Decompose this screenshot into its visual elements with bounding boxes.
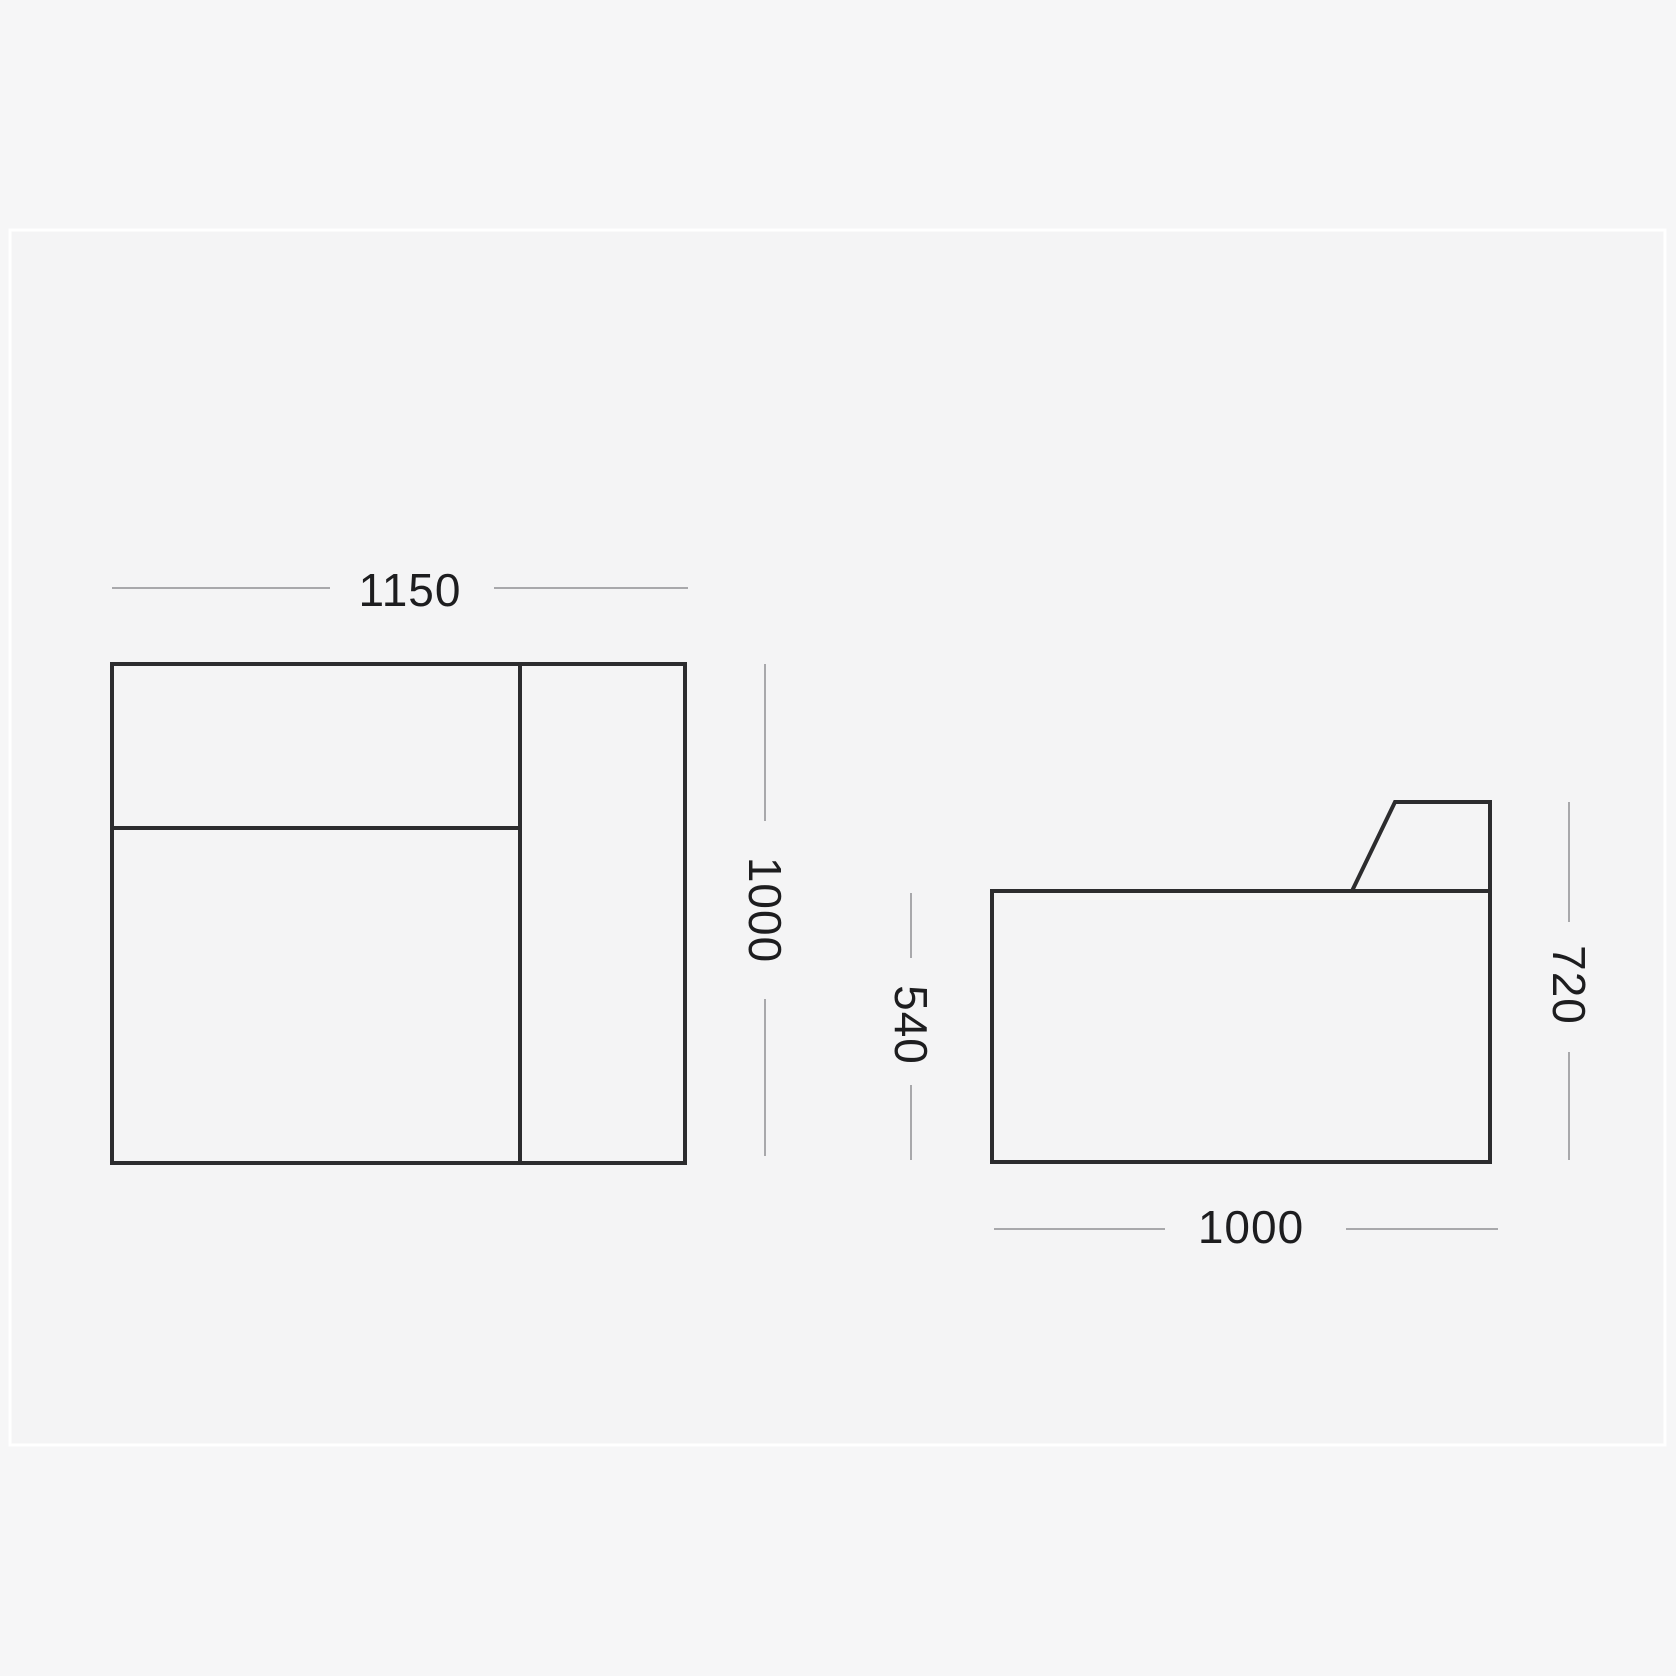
side-view-overall-height-dim-label: 720 bbox=[1543, 945, 1595, 1025]
side-view-depth-dim-label: 1000 bbox=[1198, 1201, 1304, 1253]
content-card bbox=[10, 230, 1665, 1445]
dimension-drawing: 1150 1000 540 bbox=[0, 0, 1676, 1676]
top-view-depth-dim-label: 1000 bbox=[739, 857, 791, 963]
side-view-seat-height-dim-label: 540 bbox=[885, 985, 937, 1065]
dimension-drawing-page: 1150 1000 540 bbox=[0, 0, 1676, 1676]
top-view-width-dim-label: 1150 bbox=[359, 564, 462, 616]
